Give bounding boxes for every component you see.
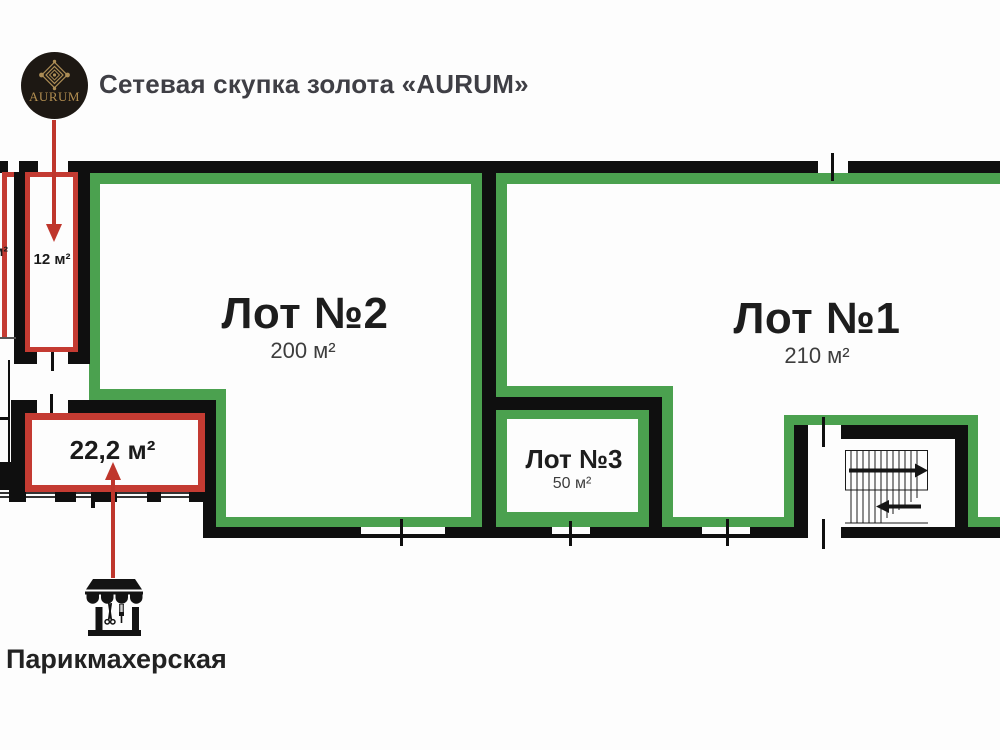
svg-text:AURUM: AURUM <box>29 89 80 104</box>
